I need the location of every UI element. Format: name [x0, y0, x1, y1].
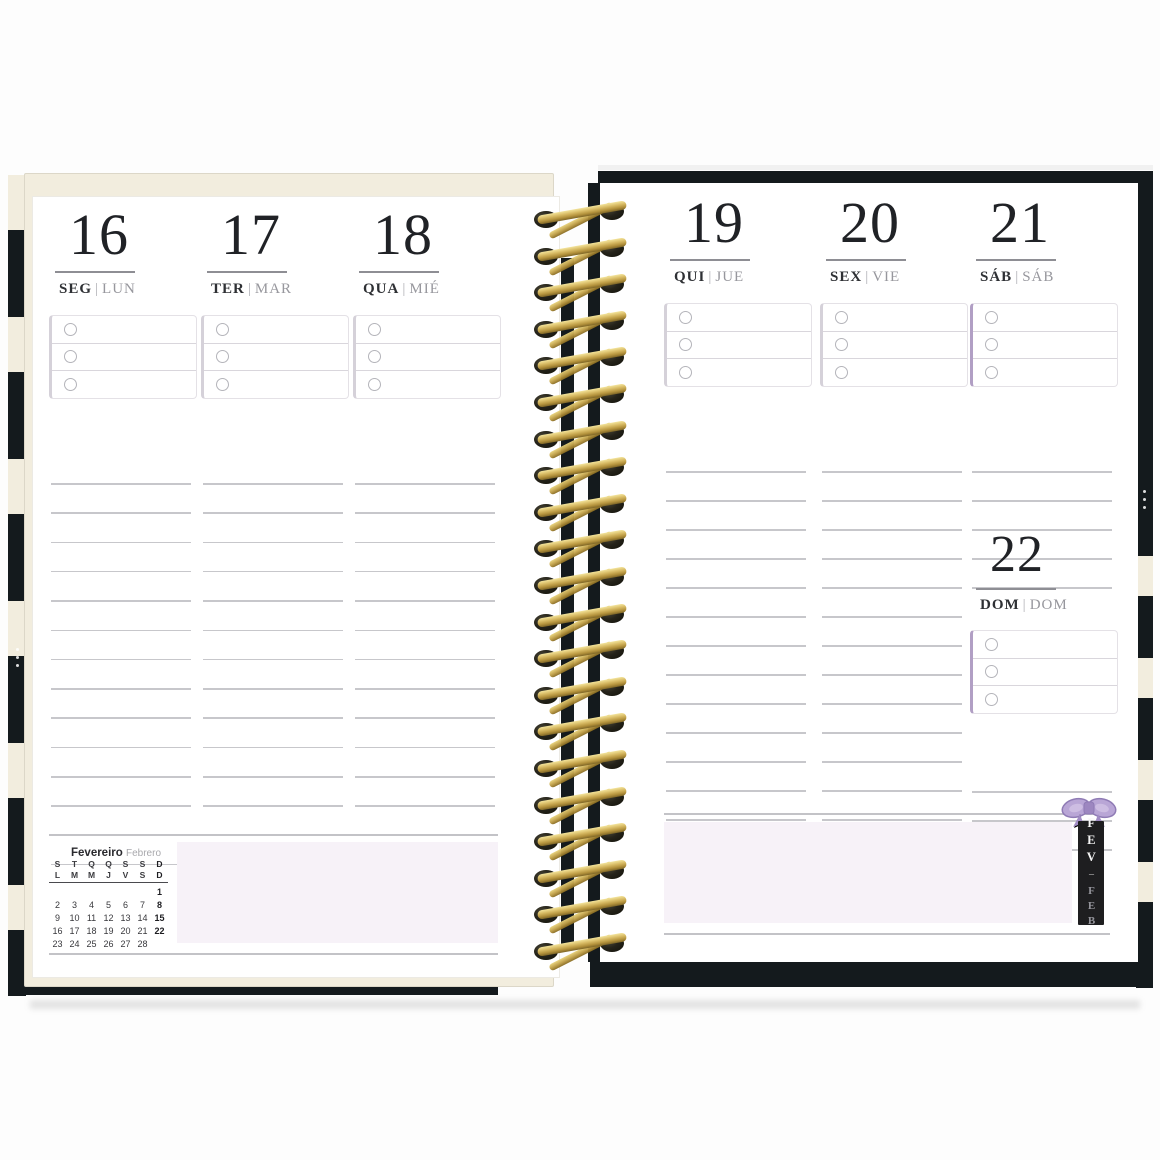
day-name-pt: SEG [59, 281, 92, 297]
ruled-line [51, 717, 191, 719]
day-name-es: DOM [1030, 597, 1068, 613]
weekday-abbrev: S [49, 859, 66, 870]
checklist-row [52, 344, 196, 372]
checkbox-circle [835, 338, 848, 351]
right-page: 19 QUI|JUE 20 SEX|VIE [600, 183, 1138, 962]
ruled-line [203, 688, 343, 690]
day-name-pt: SEX [830, 269, 862, 285]
mini-calendar-dates: 1234567891011121314151617181920212223242… [49, 886, 168, 951]
month-tab-pt: FEV [1085, 816, 1098, 867]
calendar-date: 5 [100, 899, 117, 912]
day-name-pt: SÁB [980, 269, 1012, 285]
ruled-line [203, 659, 343, 661]
calendar-date: 22 [151, 925, 168, 938]
day-underline [826, 259, 906, 261]
ruled-line [51, 483, 191, 485]
cover-stripe-segment [1136, 171, 1153, 556]
ruled-line [666, 732, 806, 734]
day-underline [976, 588, 1056, 590]
ruled-line [51, 688, 191, 690]
month-tab-separator: – [1086, 869, 1096, 883]
calendar-date: 12 [100, 912, 117, 925]
day-number: 21 [970, 193, 1116, 253]
calendar-date: 2 [49, 899, 66, 912]
checklist-row [356, 316, 500, 344]
checklist-row [667, 332, 811, 360]
day-name-separator: | [1012, 269, 1022, 285]
checkbox-circle [216, 350, 229, 363]
ruled-line [203, 483, 343, 485]
calendar-date: 3 [66, 899, 83, 912]
ruled-line [203, 542, 343, 544]
ruled-line [666, 761, 806, 763]
checklist-row [973, 359, 1117, 386]
day-block-sunday: 22 DOM|DOM [970, 527, 1116, 583]
day-number: 20 [820, 193, 966, 253]
checklist-row [973, 304, 1117, 332]
day-name-separator: | [399, 281, 409, 297]
month-tab-es: FEB [1086, 885, 1097, 930]
day-name-separator: | [92, 281, 102, 297]
notes-area [664, 822, 1072, 923]
calendar-date [83, 886, 100, 899]
day-name-es: SÁB [1022, 269, 1054, 285]
day-name-pt: TER [211, 281, 245, 297]
mini-calendar-divider [49, 882, 168, 883]
checklist-row [973, 686, 1117, 713]
ruled-line [666, 819, 806, 821]
ruled-line [822, 471, 962, 473]
checkbox-circle [985, 311, 998, 324]
ruled-line [51, 542, 191, 544]
day-underline [670, 259, 750, 261]
ruled-line [355, 483, 495, 485]
checklist-row [667, 304, 811, 332]
day-label: QUA|MIÉ [363, 281, 440, 298]
calendar-date: 9 [49, 912, 66, 925]
ruled-line [355, 659, 495, 661]
ruled-line [51, 805, 191, 807]
checkbox-circle [64, 323, 77, 336]
calendar-date [100, 886, 117, 899]
ruled-line [203, 805, 343, 807]
ruled-line [972, 471, 1112, 473]
ruled-line [666, 558, 806, 560]
day-underline [207, 271, 287, 273]
ruled-line [666, 645, 806, 647]
checklist-row [204, 344, 348, 372]
ruled-line [355, 571, 495, 573]
calendar-date: 7 [134, 899, 151, 912]
mini-calendar: Fevereiro Febrero STQQSSDLMMJVSD 1234567… [49, 847, 168, 951]
day-column-monday: 16 SEG|LUN [49, 205, 195, 825]
task-checklist [353, 315, 501, 399]
day-number: 22 [970, 527, 1116, 583]
ruled-line [203, 717, 343, 719]
cover-stripe-segment [1136, 800, 1153, 862]
ruled-line [51, 747, 191, 749]
weekday-abbrev: D [151, 859, 168, 870]
calendar-date: 6 [117, 899, 134, 912]
checkbox-circle [985, 665, 998, 678]
ruled-line [822, 790, 962, 792]
page-edge-dots [16, 648, 19, 651]
ruled-line [666, 471, 806, 473]
checklist-row [204, 316, 348, 344]
right-cover-stripes [1136, 171, 1153, 988]
ruled-line [203, 747, 343, 749]
weekday-abbrev: S [117, 859, 134, 870]
ruled-line [972, 500, 1112, 502]
day-name-pt: QUA [363, 281, 399, 297]
ruled-line [355, 747, 495, 749]
checklist-row [667, 359, 811, 386]
weekday-abbrev: M [66, 870, 83, 881]
day-column-friday: 20 SEX|VIE [820, 193, 966, 813]
ruled-line [51, 600, 191, 602]
ruled-line-full [664, 933, 1110, 935]
day-label: QUI|JUE [674, 269, 744, 286]
calendar-date: 17 [66, 925, 83, 938]
weekday-abbrev: S [134, 859, 151, 870]
ruled-line [666, 790, 806, 792]
day-name-separator: | [862, 269, 872, 285]
weekday-abbrev: T [66, 859, 83, 870]
checklist-row [823, 304, 967, 332]
calendar-date [117, 886, 134, 899]
calendar-date [151, 938, 168, 951]
day-name-es: MAR [255, 281, 292, 297]
ruled-line [666, 529, 806, 531]
ruled-line [822, 558, 962, 560]
calendar-date: 24 [66, 938, 83, 951]
ruled-line [822, 761, 962, 763]
calendar-date: 19 [100, 925, 117, 938]
calendar-date [49, 886, 66, 899]
checkbox-circle [985, 693, 998, 706]
ruled-line [355, 542, 495, 544]
checklist-row [204, 371, 348, 398]
weekday-abbrev: Q [83, 859, 100, 870]
ruled-line [355, 512, 495, 514]
ruled-line-full [49, 953, 498, 955]
ruled-line [355, 630, 495, 632]
mini-calendar-weekday-header: STQQSSDLMMJVSD [49, 859, 168, 881]
day-label: SEX|VIE [830, 269, 900, 286]
checkbox-circle [679, 311, 692, 324]
ruled-line [972, 791, 1112, 793]
day-label: TER|MAR [211, 281, 292, 298]
calendar-date: 8 [151, 899, 168, 912]
checkbox-circle [985, 638, 998, 651]
task-checklist [970, 630, 1118, 714]
ruled-line [666, 703, 806, 705]
ruled-line [355, 717, 495, 719]
day-name-separator: | [705, 269, 715, 285]
ruled-line [822, 645, 962, 647]
checklist-row [823, 332, 967, 360]
day-label: SÁB|SÁB [980, 269, 1054, 286]
page-edge-dots [1143, 490, 1146, 493]
ruled-line [666, 500, 806, 502]
month-name-es: Febrero [126, 848, 161, 859]
cover-stripe-segment [1136, 862, 1153, 902]
calendar-date: 10 [66, 912, 83, 925]
planner-photo: 16 SEG|LUN 17 TER|MAR [0, 0, 1160, 1160]
weekday-abbrev: V [117, 870, 134, 881]
day-number: 17 [201, 205, 347, 265]
day-name-separator: | [245, 281, 255, 297]
ruled-line [51, 571, 191, 573]
checkbox-circle [64, 378, 77, 391]
cover-stripe-segment [1136, 596, 1153, 658]
cover-stripe-segment [1136, 698, 1153, 760]
ruled-line [666, 616, 806, 618]
task-checklist [201, 315, 349, 399]
checklist-row [823, 359, 967, 386]
ruled-line [51, 659, 191, 661]
checklist-row [356, 371, 500, 398]
ruled-line [51, 512, 191, 514]
ruled-line [355, 688, 495, 690]
ruled-line [822, 616, 962, 618]
left-page: 16 SEG|LUN 17 TER|MAR [32, 196, 560, 978]
calendar-date: 28 [134, 938, 151, 951]
checkbox-circle [835, 366, 848, 379]
day-number: 18 [353, 205, 499, 265]
ruled-line [822, 732, 962, 734]
ruled-line [203, 600, 343, 602]
ruled-line [355, 805, 495, 807]
notes-area [177, 842, 498, 943]
checklist-row [973, 332, 1117, 360]
notebook-shadow [30, 1000, 1140, 1009]
checklist-row [973, 659, 1117, 687]
month-tab: FEV – FEB [1078, 821, 1104, 925]
calendar-date [134, 886, 151, 899]
ruled-line [822, 674, 962, 676]
day-name-pt: DOM [980, 597, 1020, 613]
day-underline [976, 259, 1056, 261]
day-name-separator: | [1020, 597, 1030, 613]
task-checklist [970, 303, 1118, 387]
ruled-line [203, 776, 343, 778]
calendar-date: 4 [83, 899, 100, 912]
ruled-line-full [664, 813, 1110, 815]
day-column-thursday: 19 QUI|JUE [664, 193, 810, 813]
checkbox-circle [216, 378, 229, 391]
day-label: SEG|LUN [59, 281, 136, 298]
day-name-es: MIÉ [409, 281, 440, 297]
ruled-line [203, 630, 343, 632]
calendar-date: 26 [100, 938, 117, 951]
ruled-line [666, 674, 806, 676]
calendar-date: 11 [83, 912, 100, 925]
ruled-line-full [49, 834, 498, 836]
checkbox-circle [368, 350, 381, 363]
ruled-line [355, 600, 495, 602]
weekday-abbrev: M [83, 870, 100, 881]
checkbox-circle [679, 338, 692, 351]
ruled-line [822, 587, 962, 589]
ruled-line [203, 512, 343, 514]
task-checklist [49, 315, 197, 399]
task-checklist [820, 303, 968, 387]
checkbox-circle [985, 338, 998, 351]
checklist-row [973, 631, 1117, 659]
calendar-date: 27 [117, 938, 134, 951]
calendar-date: 23 [49, 938, 66, 951]
cover-stripe-segment [1136, 658, 1153, 698]
ruled-line [203, 571, 343, 573]
cover-stripe-segment [1136, 556, 1153, 596]
checklist-row [356, 344, 500, 372]
weekday-abbrev: D [151, 870, 168, 881]
checkbox-circle [985, 366, 998, 379]
day-name-es: VIE [872, 269, 900, 285]
checkbox-circle [679, 366, 692, 379]
mini-calendar-title: Fevereiro Febrero [49, 847, 168, 859]
checkbox-circle [835, 311, 848, 324]
weekday-abbrev: J [100, 870, 117, 881]
checkbox-circle [64, 350, 77, 363]
day-label: DOM|DOM [980, 597, 1068, 614]
calendar-date: 14 [134, 912, 151, 925]
checkbox-circle [216, 323, 229, 336]
ruled-line [822, 703, 962, 705]
ruled-line [822, 500, 962, 502]
calendar-date: 13 [117, 912, 134, 925]
day-name-es: LUN [102, 281, 136, 297]
weekday-abbrev: Q [100, 859, 117, 870]
ruled-line [51, 776, 191, 778]
day-underline [359, 271, 439, 273]
calendar-date: 15 [151, 912, 168, 925]
calendar-date [66, 886, 83, 899]
ruled-line [822, 819, 962, 821]
calendar-date: 16 [49, 925, 66, 938]
day-column-tuesday: 17 TER|MAR [201, 205, 347, 825]
day-number: 16 [49, 205, 195, 265]
checkbox-circle [368, 378, 381, 391]
calendar-date: 1 [151, 886, 168, 899]
day-column-wednesday: 18 QUA|MIÉ [353, 205, 499, 825]
checklist-row [52, 371, 196, 398]
checkbox-circle [368, 323, 381, 336]
calendar-date: 20 [117, 925, 134, 938]
task-checklist [664, 303, 812, 387]
calendar-date: 25 [83, 938, 100, 951]
month-name-pt: Fevereiro [71, 847, 123, 859]
cover-stripe-segment [1136, 760, 1153, 800]
day-number: 19 [664, 193, 810, 253]
ruled-line [355, 776, 495, 778]
weekday-abbrev: L [49, 870, 66, 881]
ruled-line [666, 587, 806, 589]
calendar-date: 21 [134, 925, 151, 938]
weekday-abbrev: S [134, 870, 151, 881]
day-name-pt: QUI [674, 269, 705, 285]
checklist-row [52, 316, 196, 344]
day-name-es: JUE [715, 269, 744, 285]
spine-strip [561, 258, 574, 950]
cover-top-shadow [598, 165, 1153, 170]
calendar-date: 18 [83, 925, 100, 938]
ruled-line [51, 630, 191, 632]
day-underline [55, 271, 135, 273]
ruled-line [822, 529, 962, 531]
